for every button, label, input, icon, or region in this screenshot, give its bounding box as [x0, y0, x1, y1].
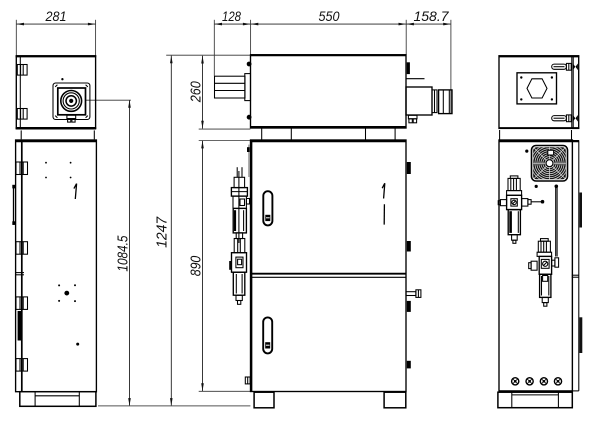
svg-text:260: 260	[187, 81, 204, 103]
svg-text:890: 890	[187, 255, 204, 276]
svg-text:281: 281	[45, 8, 67, 24]
svg-text:158.7: 158.7	[414, 8, 450, 24]
svg-text:1084.5: 1084.5	[114, 235, 131, 272]
svg-text:128: 128	[222, 8, 241, 24]
svg-text:550: 550	[319, 8, 340, 24]
svg-text:1247: 1247	[154, 216, 171, 248]
